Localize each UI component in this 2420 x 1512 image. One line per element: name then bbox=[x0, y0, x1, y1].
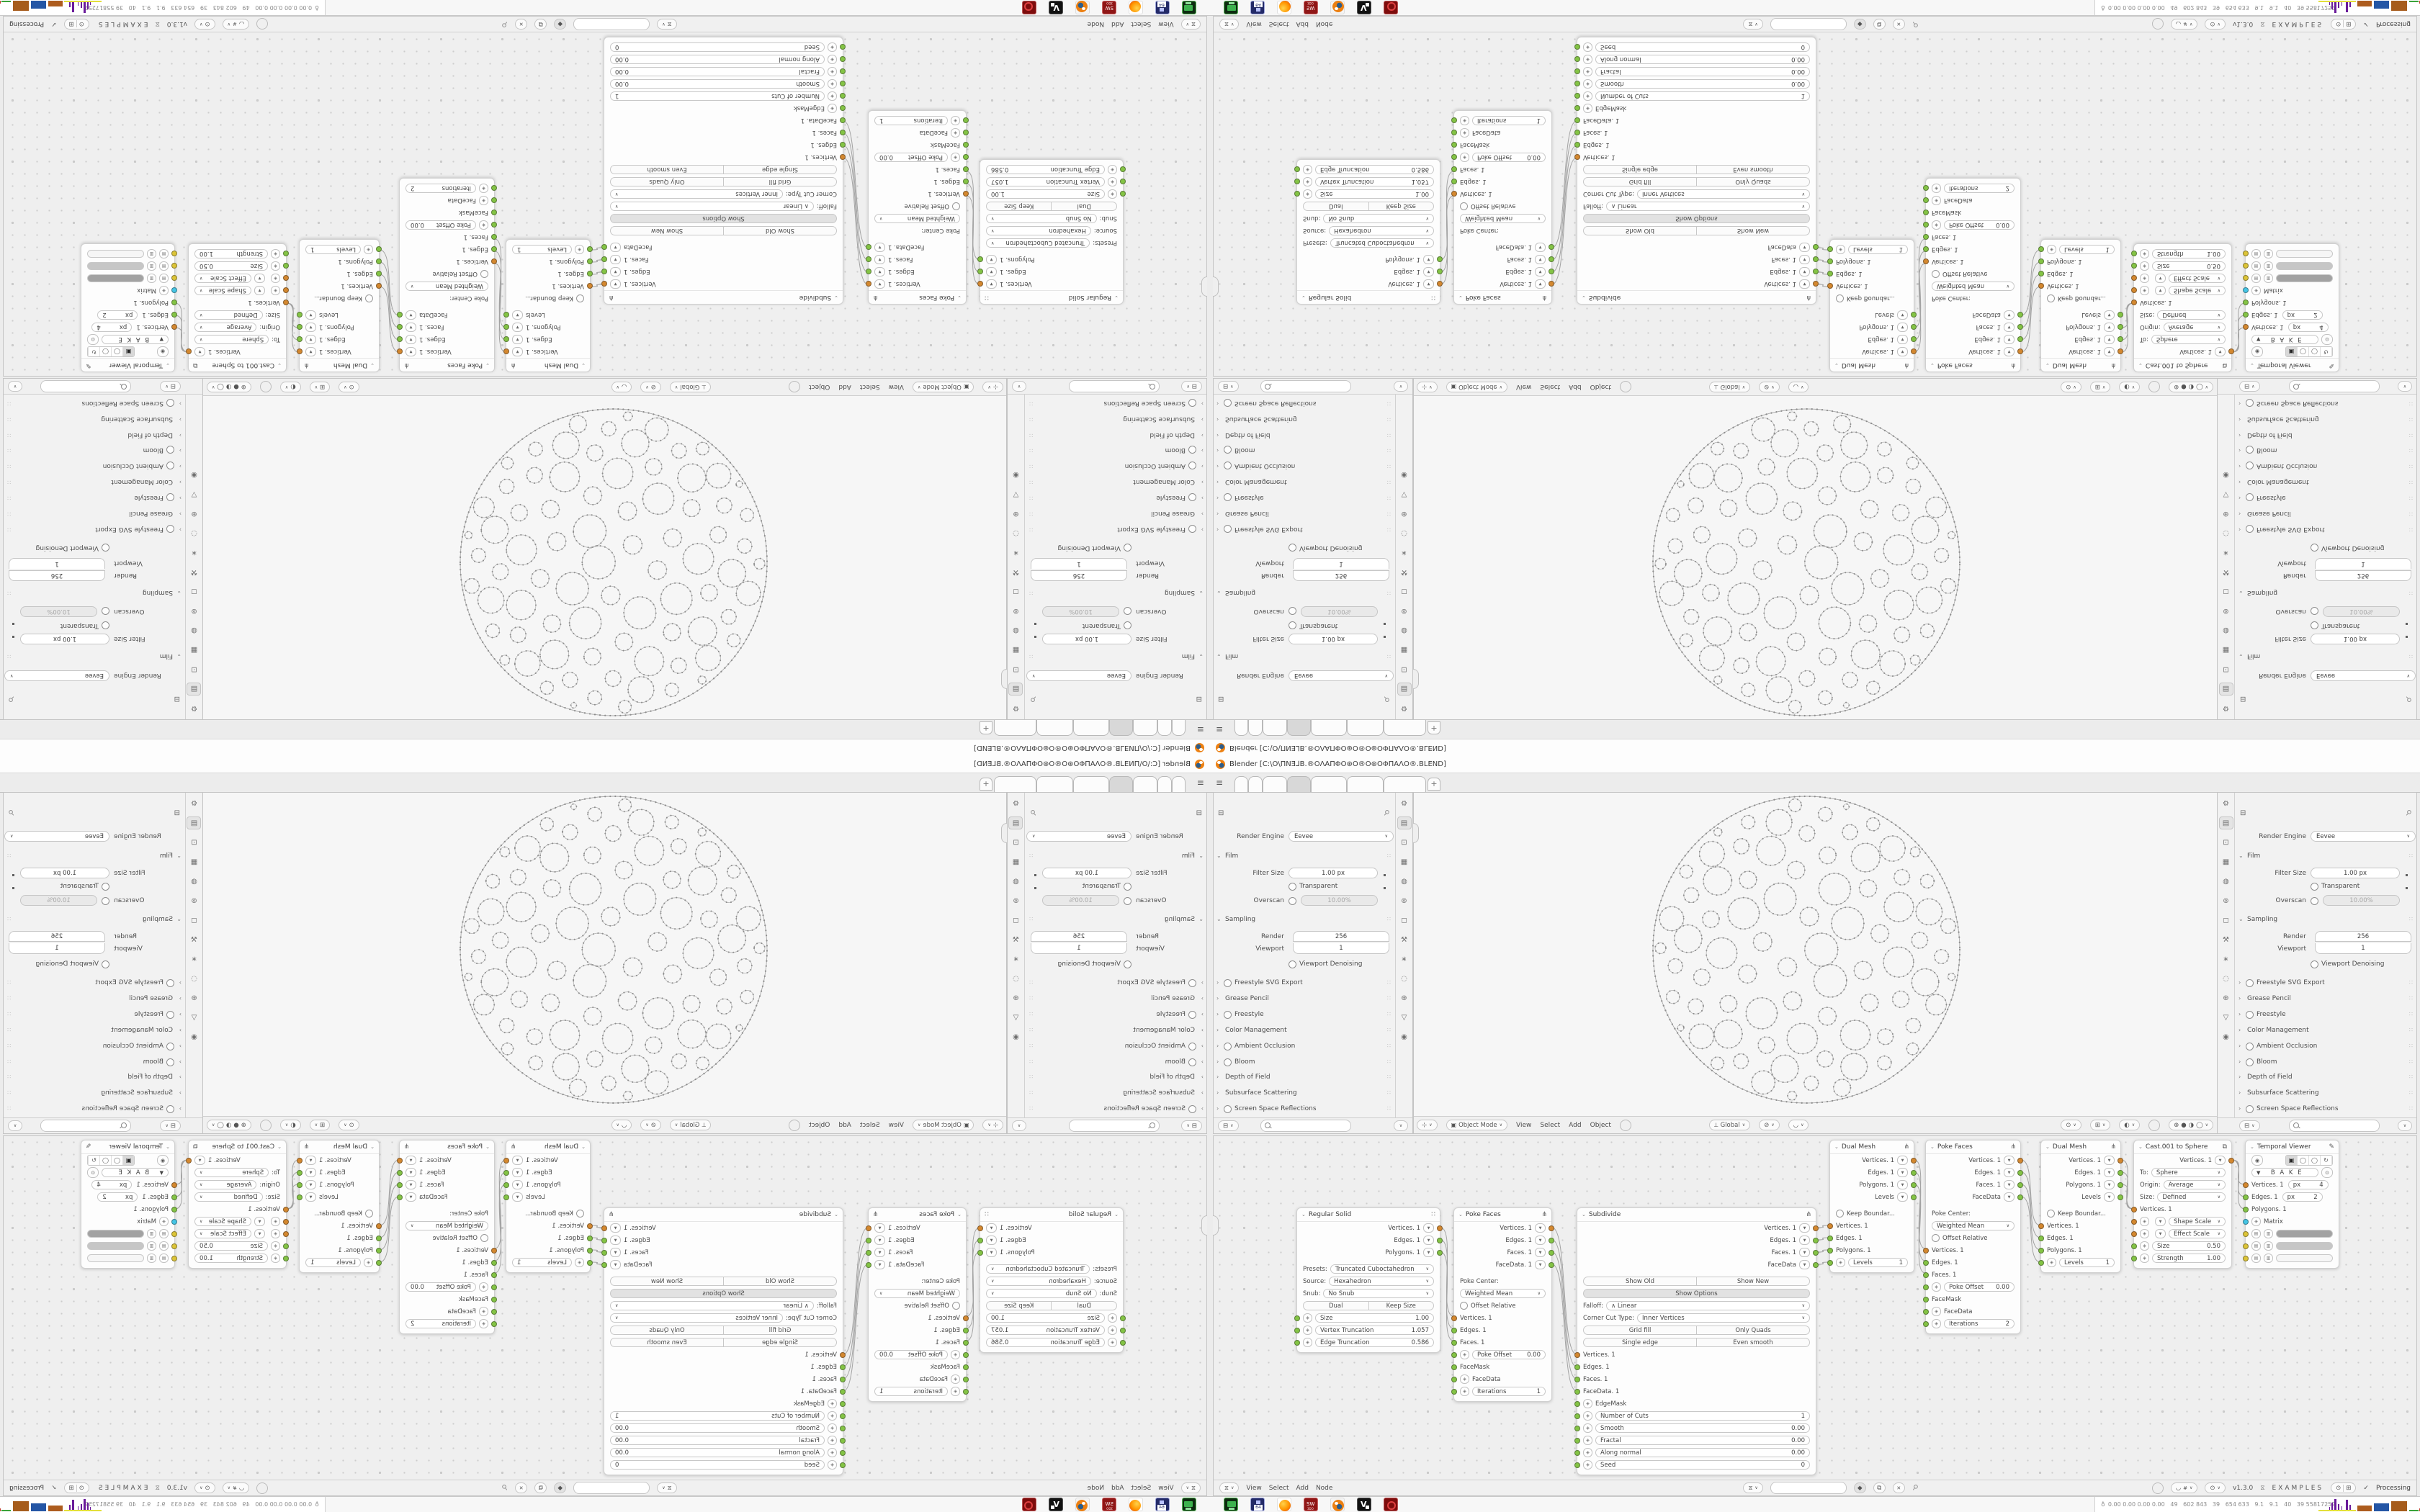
node-header[interactable]: ⌄Dual Mesh⋔ bbox=[2041, 358, 2120, 372]
select-field[interactable]: Hexahedron∨ bbox=[986, 226, 1091, 235]
texture-icon[interactable]: ▤ bbox=[159, 261, 169, 271]
dropdown-circle[interactable]: ▼ bbox=[2215, 1156, 2226, 1165]
socket-data[interactable] bbox=[1827, 1236, 1833, 1241]
properties-tab-world[interactable]: ⊚ bbox=[187, 894, 202, 907]
diamond-toggle[interactable]: ◈ bbox=[1836, 245, 1845, 254]
workspace-tab[interactable] bbox=[1248, 720, 1263, 736]
properties-tab-modifiers[interactable]: ⚒ bbox=[2219, 566, 2233, 579]
slider-poke-offset[interactable]: Poke Offset0.00 bbox=[405, 1282, 476, 1292]
socket-vertices[interactable] bbox=[977, 282, 983, 287]
px-field[interactable]: px4 bbox=[2288, 1180, 2329, 1189]
node-header[interactable]: ⌄Regular Solid∷ bbox=[980, 290, 1123, 304]
socket-vertices[interactable] bbox=[1923, 1248, 1929, 1254]
properties-tab-particles[interactable]: ∗ bbox=[187, 546, 202, 559]
snap-settings[interactable]: ◡#∨ bbox=[2171, 19, 2198, 30]
checkbox[interactable] bbox=[1932, 1234, 1940, 1242]
properties-tab-scene[interactable]: ◍ bbox=[2219, 875, 2233, 888]
diamond-toggle[interactable]: ◈ bbox=[479, 1307, 488, 1316]
checkbox[interactable] bbox=[576, 1210, 584, 1218]
dropdown-circle[interactable]: ▼ bbox=[1897, 1168, 1908, 1177]
socket-data[interactable] bbox=[491, 1260, 497, 1266]
render-icon[interactable]: ⊙ bbox=[87, 1167, 99, 1178]
socket-data[interactable] bbox=[1451, 1328, 1457, 1333]
editor-type-button[interactable]: ⊟∨ bbox=[1181, 1120, 1202, 1131]
menu-add[interactable]: Add bbox=[1569, 384, 1581, 391]
select-field[interactable]: Average∨ bbox=[194, 323, 256, 332]
button-only-quads[interactable]: Only Quads bbox=[1697, 1326, 1810, 1335]
editor-type-button[interactable]: ⧖∨ bbox=[1219, 19, 1239, 30]
node-header[interactable]: ⌄Poke Faces⋔ bbox=[1926, 358, 2020, 372]
socket-data[interactable] bbox=[1923, 186, 1929, 192]
gradient-bar[interactable] bbox=[2276, 1242, 2333, 1250]
value-field[interactable]: 1.00 px bbox=[1042, 634, 1131, 644]
dropdown-circle[interactable]: ▼ bbox=[2104, 310, 2115, 320]
properties-tab-constraints[interactable]: ⊕ bbox=[2219, 991, 2233, 1004]
dropdown-circle[interactable]: ▼ bbox=[2104, 323, 2115, 332]
properties-tab-data[interactable]: ▽ bbox=[2219, 488, 2233, 501]
node-header[interactable]: ⌄Poke Faces⋔ bbox=[1454, 290, 1551, 304]
slider-iterations[interactable]: Iterations2 bbox=[1944, 1319, 2015, 1328]
value-field[interactable]: 1 bbox=[1031, 943, 1127, 954]
properties-tab-particles[interactable]: ∗ bbox=[1009, 546, 1023, 559]
value-field[interactable]: 1 bbox=[9, 558, 105, 569]
editor-type-button[interactable]: ⊹∨ bbox=[1417, 382, 1438, 392]
socket-vertices[interactable] bbox=[2131, 1219, 2137, 1225]
menu-select[interactable]: Select bbox=[1131, 21, 1152, 28]
socket-data[interactable] bbox=[2117, 1194, 2123, 1200]
socket-data[interactable] bbox=[1923, 1272, 1929, 1278]
dropdown-circle[interactable]: ▼ bbox=[610, 255, 621, 264]
px-field[interactable]: px2 bbox=[2282, 1192, 2323, 1202]
render-preview-circle[interactable] bbox=[260, 382, 272, 393]
select-field[interactable]: Effect Scale∨ bbox=[2169, 1229, 2226, 1238]
select-field[interactable]: Weighted Mean∨ bbox=[1460, 1289, 1546, 1298]
options-chevron-button[interactable]: ∨ bbox=[8, 381, 22, 392]
checkbox[interactable] bbox=[102, 544, 109, 552]
display-mode-group[interactable]: ▣◯◯↻ bbox=[87, 346, 135, 357]
menu-add[interactable]: Add bbox=[1111, 1485, 1124, 1492]
socket-data[interactable] bbox=[1451, 1364, 1457, 1370]
node-header[interactable]: ⌄Cast.001 to Sphere⧉ bbox=[2134, 1140, 2231, 1154]
xray-toggle[interactable]: ◐∨ bbox=[280, 1120, 301, 1130]
socket-data[interactable] bbox=[601, 269, 607, 275]
section-checkbox[interactable] bbox=[1188, 1058, 1196, 1066]
proportional-edit[interactable]: ⊙∨ bbox=[2205, 1482, 2226, 1493]
gizmo-toggle[interactable]: ⊙∨ bbox=[2061, 382, 2081, 392]
node-poke-faces[interactable]: ⌄Poke Faces⋔Vertices. 1▼Edges. 1▼Faces. … bbox=[1925, 1140, 2021, 1334]
diamond-toggle[interactable]: ◈ bbox=[1303, 177, 1312, 186]
diamond-toggle[interactable]: ◈ bbox=[271, 1254, 280, 1263]
checkbox[interactable] bbox=[2311, 897, 2318, 905]
properties-tab-world[interactable]: ⊚ bbox=[1397, 894, 1412, 907]
button-only-quads[interactable]: Only Quads bbox=[610, 1326, 723, 1335]
menu-add[interactable]: Add bbox=[1296, 1485, 1309, 1492]
dropdown-circle[interactable]: ▼ bbox=[1423, 267, 1434, 276]
socket-data[interactable] bbox=[1923, 1284, 1929, 1290]
socket-data[interactable] bbox=[491, 1297, 497, 1302]
workspace-tab[interactable] bbox=[1384, 776, 1426, 792]
diamond-toggle[interactable]: ◈ bbox=[2251, 286, 2261, 295]
workspace-tab[interactable] bbox=[1172, 720, 1186, 736]
dropdown-circle[interactable]: ▼ bbox=[610, 1248, 621, 1257]
slider-along-normal[interactable]: Along normal0.00 bbox=[1595, 1448, 1810, 1457]
properties-tab-output[interactable]: ⊡ bbox=[1009, 663, 1023, 676]
node-header[interactable]: ⌄Temporal Viewer✎ bbox=[2246, 358, 2339, 372]
render-engine-select[interactable]: Eevee∨ bbox=[2311, 831, 2416, 842]
socket-data[interactable] bbox=[1120, 1328, 1126, 1333]
node-temporal-viewer[interactable]: ⌄Temporal Viewer✎◉▣◯◯↻▼B A K E⊙Vertices.… bbox=[81, 243, 175, 372]
section-checkbox[interactable] bbox=[1224, 979, 1232, 987]
node-header[interactable]: ⌄Temporal Viewer✎ bbox=[81, 1140, 174, 1154]
chevron-down-icon[interactable]: ⌄ bbox=[1582, 1212, 1586, 1218]
properties-tab-scene[interactable]: ◍ bbox=[1009, 624, 1023, 637]
properties-tab-output[interactable]: ⊡ bbox=[187, 663, 202, 676]
mode-select[interactable]: ▣Object Mode∨ bbox=[913, 1120, 974, 1130]
socket-data[interactable] bbox=[601, 1250, 607, 1256]
socket-data[interactable] bbox=[2131, 1243, 2137, 1249]
slider-along-normal[interactable]: Along normal0.00 bbox=[610, 55, 825, 64]
socket-data[interactable] bbox=[1574, 45, 1580, 50]
dropdown-circle[interactable]: ▼ bbox=[254, 1217, 265, 1226]
node-poke-faces[interactable]: ⌄Poke Faces⋔Vertices. 1▼Edges. 1▼Faces. … bbox=[1453, 1207, 1552, 1402]
socket-vertices[interactable] bbox=[601, 282, 607, 287]
select-field[interactable]: Weighted Mean∨ bbox=[1460, 214, 1546, 223]
checkbox[interactable] bbox=[1836, 1210, 1844, 1218]
editor-type-button[interactable]: ⊟∨ bbox=[2239, 381, 2260, 392]
slider-edge-truncation[interactable]: Edge Truncation0.586 bbox=[1315, 1338, 1434, 1347]
pin-icon[interactable]: ⚲ bbox=[501, 19, 510, 29]
properties-tab-world[interactable]: ⊚ bbox=[187, 605, 202, 618]
options-chevron-button[interactable]: ∨ bbox=[2398, 1120, 2412, 1131]
diamond-toggle[interactable]: ◈ bbox=[1108, 165, 1117, 174]
chevron-down-icon[interactable]: ⌄ bbox=[581, 362, 586, 368]
socket-data[interactable] bbox=[587, 1260, 593, 1266]
section-checkbox[interactable] bbox=[1188, 1011, 1196, 1019]
properties-tab-tool[interactable]: ⚙ bbox=[1397, 797, 1412, 810]
socket-data[interactable] bbox=[2117, 1182, 2123, 1188]
menu-view[interactable]: View bbox=[1158, 1485, 1173, 1492]
select-field[interactable]: Effect Scale∨ bbox=[194, 1229, 251, 1238]
dropdown-circle[interactable]: ▼ bbox=[254, 286, 265, 295]
overlays-toggle[interactable]: ⊞∨ bbox=[2090, 382, 2111, 392]
node-dual-mesh[interactable]: ⌄Dual Mesh⋔Vertices. 1▼Edges. 1▼Polygons… bbox=[2040, 239, 2121, 372]
slider-levels[interactable]: Levels1 bbox=[305, 245, 361, 254]
node-tree-name-field[interactable] bbox=[573, 1482, 650, 1494]
workspace-tab[interactable] bbox=[994, 720, 1036, 736]
socket-vertices[interactable] bbox=[1437, 1225, 1443, 1231]
socket-data[interactable] bbox=[963, 1340, 969, 1346]
socket-data[interactable] bbox=[2038, 247, 2044, 253]
section-checkbox[interactable] bbox=[1188, 493, 1196, 501]
dropdown-circle[interactable]: ▼ bbox=[986, 1236, 997, 1245]
socket-data[interactable] bbox=[1451, 143, 1457, 148]
node-header[interactable]: ⌄Dual Mesh⋔ bbox=[2041, 1140, 2120, 1154]
socket-data[interactable] bbox=[2017, 1194, 2023, 1200]
section-checkbox[interactable] bbox=[1224, 525, 1232, 533]
diamond-toggle[interactable]: ◈ bbox=[479, 220, 488, 230]
node-header[interactable]: ⌄Poke Faces⋔ bbox=[400, 358, 494, 372]
section-checkbox[interactable] bbox=[1224, 446, 1232, 454]
eye-icon[interactable]: ◉ bbox=[157, 346, 169, 357]
options-chevron-button[interactable]: ∨ bbox=[8, 1120, 22, 1131]
animate-dot[interactable] bbox=[12, 874, 14, 876]
socket-data[interactable] bbox=[1923, 1321, 1929, 1327]
chevron-down-icon[interactable]: ⌄ bbox=[1834, 362, 1839, 368]
button-single-edge[interactable]: Single edge bbox=[723, 165, 837, 174]
pin-icon[interactable]: ⚲ bbox=[2403, 694, 2413, 703]
diamond-toggle[interactable]: ◈ bbox=[1303, 1313, 1312, 1323]
node-subdivide[interactable]: ⌄Subdivide⋔Vertices. 1▼Edges. 1▼Faces. 1… bbox=[604, 37, 843, 305]
value-field[interactable]: 1.00 px bbox=[20, 868, 109, 878]
dropdown-circle[interactable]: ▼ bbox=[512, 347, 523, 356]
properties-tab-scene[interactable]: ◍ bbox=[1397, 624, 1412, 637]
slider-iterations[interactable]: Iterations2 bbox=[1944, 184, 2015, 193]
gradient-bar[interactable] bbox=[2276, 1254, 2333, 1262]
diamond-toggle[interactable]: ◈ bbox=[2140, 1254, 2149, 1263]
proportional-edit[interactable]: ⊙∨ bbox=[194, 1482, 215, 1493]
annotation-circle-button[interactable] bbox=[789, 1120, 800, 1131]
section-checkbox[interactable] bbox=[166, 1011, 174, 1019]
dropdown-circle[interactable]: ▼ bbox=[2215, 347, 2226, 356]
diamond-toggle[interactable]: ◈ bbox=[1583, 1411, 1592, 1421]
slider-levels[interactable]: Levels1 bbox=[1848, 1258, 1908, 1267]
slider-seed[interactable]: Seed0 bbox=[1595, 42, 1810, 52]
socket-data[interactable] bbox=[2038, 271, 2044, 277]
properties-tab-object[interactable]: ◻ bbox=[187, 585, 202, 598]
dropdown-circle[interactable]: ▼ bbox=[874, 255, 885, 264]
transform-orientation-select[interactable]: ⟂Global∨ bbox=[1709, 382, 1750, 392]
render-engine-select[interactable]: Eevee∨ bbox=[1289, 670, 1394, 681]
properties-tab-particles[interactable]: ∗ bbox=[187, 953, 202, 966]
search-input[interactable] bbox=[2289, 380, 2380, 392]
checkbox[interactable] bbox=[102, 621, 109, 629]
gradient-bar[interactable] bbox=[2276, 262, 2333, 270]
dropdown-circle[interactable]: ▼ bbox=[874, 1236, 885, 1245]
socket-vertices[interactable] bbox=[1451, 192, 1457, 197]
checkbox[interactable] bbox=[1289, 544, 1296, 552]
chevron-down-icon[interactable]: ⌄ bbox=[1458, 294, 1463, 300]
diamond-toggle[interactable]: ◈ bbox=[828, 1423, 837, 1433]
button-show-old[interactable]: Show Old bbox=[723, 226, 837, 235]
value-field[interactable]: 256 bbox=[1031, 570, 1127, 581]
properties-tab-view-layer[interactable]: ▦ bbox=[187, 855, 202, 868]
mode-select[interactable]: ▣Object Mode∨ bbox=[913, 382, 974, 392]
menu-add[interactable]: Add bbox=[838, 384, 851, 391]
properties-tab-tool[interactable]: ⚙ bbox=[187, 797, 202, 810]
properties-tab-data[interactable]: ▽ bbox=[1397, 1011, 1412, 1024]
dropdown-circle[interactable]: ▼ bbox=[2155, 1217, 2166, 1226]
socket-vertices[interactable] bbox=[2017, 1158, 2023, 1164]
chevron-down-icon[interactable]: ⌄ bbox=[2138, 362, 2143, 368]
properties-tab-tool[interactable]: ⚙ bbox=[2219, 702, 2233, 715]
dropdown-circle[interactable]: ▼ bbox=[194, 347, 205, 356]
socket-data[interactable] bbox=[1574, 106, 1580, 112]
select-field[interactable]: Effect Scale∨ bbox=[2169, 274, 2226, 283]
workspace-tab[interactable] bbox=[1157, 720, 1172, 736]
socket-vertices[interactable] bbox=[283, 1231, 289, 1237]
checkbox[interactable] bbox=[1124, 960, 1131, 968]
slider-edge-truncation[interactable]: Edge Truncation0.586 bbox=[986, 1338, 1105, 1347]
slider-size[interactable]: Size1.00 bbox=[1315, 1313, 1434, 1323]
node-header[interactable]: ⌄Regular Solid∷ bbox=[980, 1208, 1123, 1222]
select-field[interactable]: Average∨ bbox=[194, 1180, 256, 1189]
select-field[interactable]: Inner Vertices∨ bbox=[1637, 189, 1810, 199]
dropdown-circle[interactable]: ▼ bbox=[1423, 1236, 1434, 1245]
socket-data[interactable] bbox=[587, 1236, 593, 1241]
add-workspace-button[interactable]: + bbox=[980, 721, 992, 734]
diamond-toggle[interactable]: ◈ bbox=[1108, 1313, 1117, 1323]
socket-data[interactable] bbox=[1574, 1401, 1580, 1407]
add-workspace-button[interactable]: + bbox=[980, 778, 992, 791]
menu-add[interactable]: Add bbox=[1111, 21, 1124, 28]
gizmo-toggle[interactable]: ⊙∨ bbox=[2061, 1120, 2081, 1130]
px-field[interactable]: px4 bbox=[91, 1180, 132, 1189]
properties-tab-data[interactable]: ▽ bbox=[187, 1011, 202, 1024]
socket-vertices[interactable] bbox=[297, 1158, 302, 1164]
socket-vertices[interactable] bbox=[171, 1182, 177, 1188]
menu-object[interactable]: Object bbox=[1590, 1122, 1611, 1129]
checkbox[interactable] bbox=[1932, 270, 1940, 278]
diamond-toggle[interactable]: ◈ bbox=[2047, 245, 2056, 254]
checkbox[interactable] bbox=[1289, 960, 1296, 968]
dropdown-circle[interactable]: ▼ bbox=[1535, 1223, 1546, 1233]
bake-button[interactable]: ▼B A K E bbox=[2251, 1168, 2318, 1177]
select-field[interactable]: No Snub∨ bbox=[986, 214, 1097, 223]
slider-smooth[interactable]: Smooth0.00 bbox=[610, 1423, 825, 1433]
proportional-edit[interactable]: ⊙∨ bbox=[194, 19, 215, 30]
section-checkbox[interactable] bbox=[1224, 462, 1232, 469]
dropdown-circle[interactable]: ▼ bbox=[512, 1156, 523, 1165]
dropdown-circle[interactable]: ▼ bbox=[874, 267, 885, 276]
dropdown-circle[interactable]: ▼ bbox=[405, 1180, 416, 1189]
workspace-tab[interactable] bbox=[1384, 720, 1426, 736]
properties-tab-data[interactable]: ▽ bbox=[187, 488, 202, 501]
socket-data[interactable] bbox=[503, 337, 509, 343]
select-field[interactable]: ∧ Linear∨ bbox=[610, 1301, 814, 1310]
add-workspace-button[interactable]: + bbox=[1428, 778, 1440, 791]
workspace-tab[interactable] bbox=[1109, 776, 1133, 792]
properties-tab-tool[interactable]: ⚙ bbox=[187, 702, 202, 715]
diamond-toggle[interactable]: ◈ bbox=[1583, 1460, 1592, 1470]
pin-icon[interactable]: ⚲ bbox=[1381, 809, 1391, 818]
options-chevron-button[interactable]: ∨ bbox=[1012, 1120, 1026, 1131]
taskbar-icon-blender[interactable] bbox=[1075, 1, 1090, 14]
diamond-toggle[interactable]: ◈ bbox=[479, 1319, 488, 1328]
render-icon[interactable]: ⊙ bbox=[2321, 1167, 2333, 1178]
sidebar-toggle-handle[interactable] bbox=[1201, 1215, 1207, 1236]
render-preview-circle[interactable] bbox=[2148, 382, 2160, 393]
gradient-bar[interactable] bbox=[87, 274, 144, 282]
dropdown-circle[interactable]: ▼ bbox=[1897, 335, 1908, 344]
snap-settings[interactable]: ◡#∨ bbox=[223, 1482, 250, 1493]
checkbox[interactable] bbox=[2311, 544, 2318, 552]
snap-settings[interactable]: ◡#∨ bbox=[2171, 1482, 2198, 1493]
search-input[interactable] bbox=[40, 380, 131, 392]
dropdown-circle[interactable]: ▼ bbox=[512, 1192, 523, 1202]
diamond-toggle[interactable]: ◈ bbox=[1303, 1338, 1312, 1347]
properties-tab-modifiers[interactable]: ⚒ bbox=[187, 933, 202, 946]
dropdown-circle[interactable]: ▼ bbox=[986, 279, 997, 289]
dropdown-circle[interactable]: ▼ bbox=[2004, 310, 2015, 320]
search-input[interactable] bbox=[40, 1120, 131, 1132]
slider-seed[interactable]: Seed0 bbox=[610, 42, 825, 52]
slider-poke-offset[interactable]: Poke Offset0.00 bbox=[1472, 153, 1546, 162]
taskbar-icon-emulator-green[interactable] bbox=[1182, 1498, 1196, 1511]
taskbar-icon-inkscape-like[interactable]: V bbox=[1357, 1498, 1371, 1511]
node-subdivide[interactable]: ⌄Subdivide⋔Vertices. 1▼Edges. 1▼Faces. 1… bbox=[1577, 37, 1816, 305]
select-field[interactable]: Sphere∨ bbox=[2151, 1168, 2226, 1177]
slider-fractal[interactable]: Fractal0.00 bbox=[610, 67, 825, 76]
diamond-toggle[interactable]: ◈ bbox=[828, 1460, 837, 1470]
gradient-bar[interactable] bbox=[87, 1230, 144, 1238]
tool-pair-buttons[interactable]: ⊙⊞ bbox=[64, 19, 89, 30]
socket-vertices[interactable] bbox=[963, 1315, 969, 1321]
tree-select-button[interactable]: ⧖∨ bbox=[657, 19, 676, 30]
select-field[interactable]: ∧ Linear∨ bbox=[610, 202, 814, 211]
node-header[interactable]: ⌄Regular Solid∷ bbox=[1297, 290, 1440, 304]
section-checkbox[interactable] bbox=[2246, 1105, 2254, 1113]
section-checkbox[interactable] bbox=[1188, 1043, 1196, 1050]
socket-data[interactable] bbox=[866, 1262, 871, 1268]
histogram-icon[interactable]: ▥ bbox=[147, 274, 156, 283]
diamond-toggle[interactable]: ◈ bbox=[1108, 189, 1117, 199]
diamond-toggle[interactable]: ◈ bbox=[271, 1217, 280, 1226]
texture-icon[interactable]: ▤ bbox=[2251, 1241, 2261, 1251]
diamond-toggle[interactable]: ◈ bbox=[271, 1241, 280, 1251]
diamond-toggle[interactable]: ◈ bbox=[1932, 184, 1941, 193]
slider-size[interactable]: Size1.00 bbox=[1315, 189, 1434, 199]
socket-vertices[interactable] bbox=[283, 1219, 289, 1225]
histogram-icon[interactable]: ▥ bbox=[2264, 249, 2273, 258]
tree-select-button[interactable]: ⧖∨ bbox=[1743, 19, 1762, 30]
socket-data[interactable] bbox=[503, 312, 509, 318]
menu-view[interactable]: View bbox=[1246, 1485, 1261, 1492]
section-checkbox[interactable] bbox=[2246, 399, 2254, 407]
diamond-toggle[interactable]: ◈ bbox=[575, 245, 584, 254]
socket-data[interactable] bbox=[503, 1194, 509, 1200]
menu-select[interactable]: Select bbox=[860, 1122, 880, 1129]
dropdown-circle[interactable]: ▼ bbox=[2155, 1229, 2166, 1238]
checkbox[interactable] bbox=[1836, 294, 1844, 302]
chevron-down-icon[interactable]: ⌄ bbox=[1930, 1144, 1935, 1150]
button-dual[interactable]: Dual bbox=[1052, 1301, 1118, 1310]
slider-smooth[interactable]: Smooth0.00 bbox=[1595, 79, 1810, 89]
section-checkbox[interactable] bbox=[166, 462, 174, 469]
dropdown-circle[interactable]: ▼ bbox=[610, 243, 621, 252]
properties-tab-object[interactable]: ◻ bbox=[2219, 914, 2233, 927]
value-field[interactable]: 1.00 px bbox=[1289, 634, 1378, 644]
gradient-bar[interactable] bbox=[2276, 1230, 2333, 1238]
gradient-bar[interactable] bbox=[87, 250, 144, 258]
button-even-smooth[interactable]: Even smooth bbox=[610, 1338, 723, 1347]
taskbar-icon-red-cube-app[interactable]: SW3DO bbox=[1304, 1498, 1318, 1511]
diamond-toggle[interactable]: ◈ bbox=[1460, 128, 1469, 138]
socket-color[interactable] bbox=[2243, 1231, 2249, 1237]
chevron-down-icon[interactable]: ⌄ bbox=[1930, 362, 1935, 368]
node-poke-faces[interactable]: ⌄Poke Faces⋔Vertices. 1▼Edges. 1▼Faces. … bbox=[868, 1207, 967, 1402]
options-chevron-button[interactable]: ∨ bbox=[1394, 1120, 1408, 1131]
chevron-down-icon[interactable]: ⌄ bbox=[2138, 1144, 2143, 1150]
animate-dot[interactable] bbox=[1384, 636, 1386, 638]
dropdown-circle[interactable]: ▼ bbox=[254, 1229, 265, 1238]
display-mode-group[interactable]: ▣◯◯↻ bbox=[87, 1155, 135, 1166]
render-engine-select[interactable]: Eevee∨ bbox=[4, 831, 109, 842]
copy-button[interactable]: ⧉ bbox=[1873, 19, 1886, 30]
socket-data[interactable] bbox=[840, 1438, 846, 1444]
value-field[interactable]: 256 bbox=[1293, 931, 1389, 942]
chevron-down-icon[interactable]: ⌄ bbox=[1834, 1144, 1839, 1150]
render-icon[interactable]: ⊙ bbox=[2321, 334, 2333, 345]
